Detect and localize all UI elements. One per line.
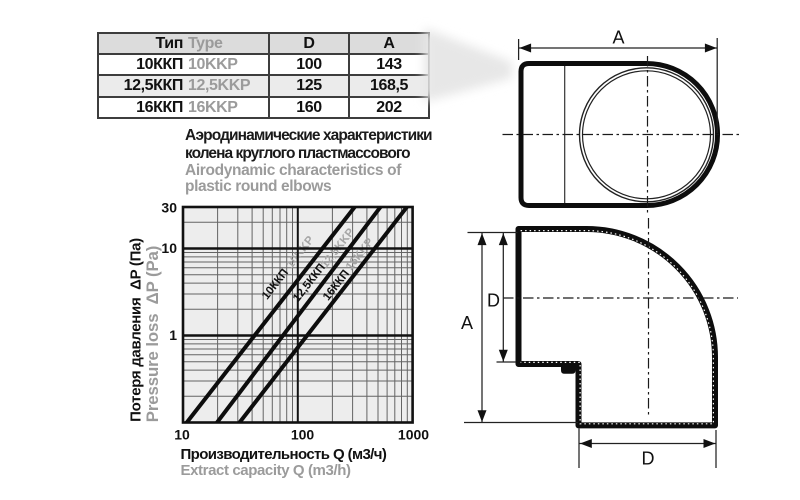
svg-text:1000: 1000	[398, 427, 429, 443]
svg-text:1: 1	[169, 327, 177, 343]
svg-text:10: 10	[161, 240, 177, 256]
svg-text:A: A	[461, 313, 473, 333]
svg-text:D: D	[487, 291, 500, 311]
svg-text:A: A	[612, 28, 624, 48]
svg-text:10: 10	[174, 427, 190, 443]
svg-text:30: 30	[161, 200, 177, 216]
svg-text:D: D	[642, 449, 655, 469]
svg-text:Pressure loss ΔP (Pa): Pressure loss ΔP (Pa)	[143, 246, 162, 423]
svg-text:Потеря давления ΔP (Па): Потеря давления ΔP (Па)	[128, 238, 145, 422]
svg-text:100: 100	[291, 427, 315, 443]
svg-text:Производительность Q (м3/ч): Производительность Q (м3/ч)	[181, 446, 387, 463]
svg-text:Extract capacity Q (m3/h): Extract capacity Q (m3/h)	[181, 462, 351, 479]
